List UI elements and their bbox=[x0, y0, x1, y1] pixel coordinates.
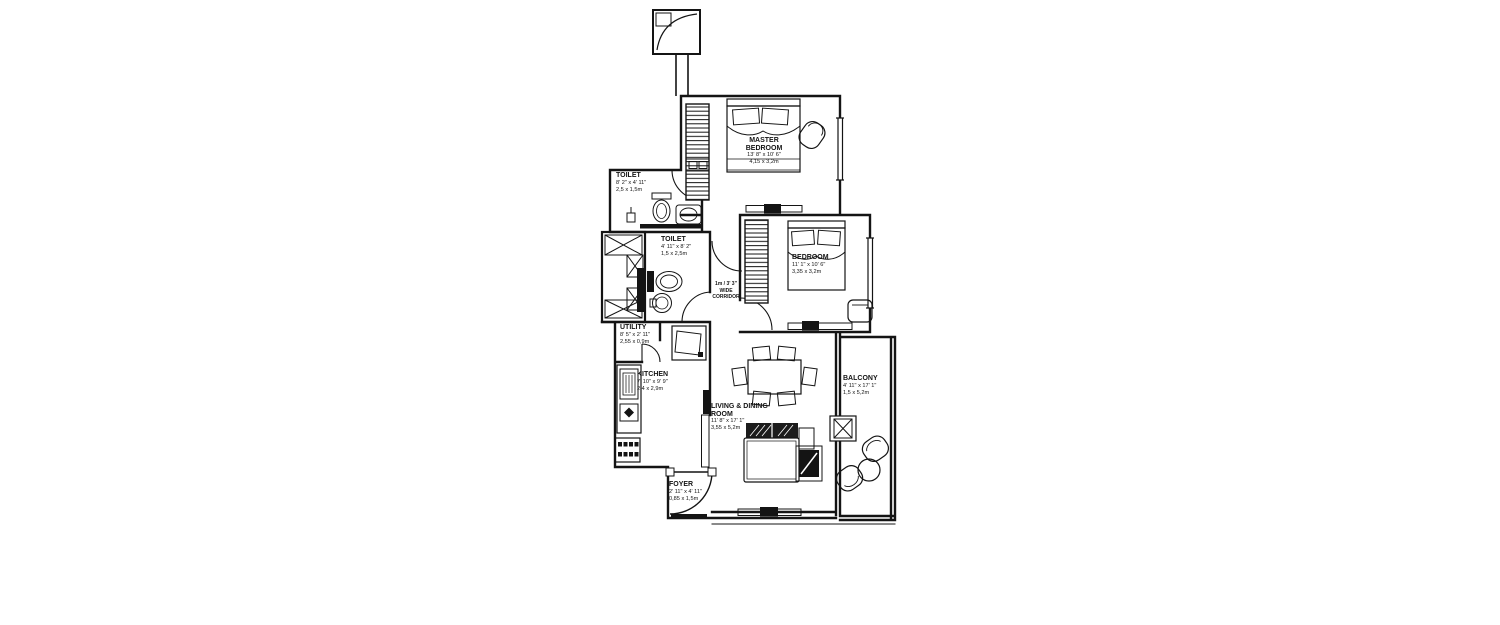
room-dim-metric: 2,5 x 1,5m bbox=[616, 187, 646, 194]
tall-unit bbox=[703, 390, 710, 414]
room-name: TOILET bbox=[661, 236, 691, 244]
shower-icon bbox=[627, 207, 635, 222]
washbasin-icon bbox=[650, 294, 672, 313]
room-dim-imperial: 8' 5" x 2' 11" bbox=[620, 332, 650, 339]
room-dim-metric: 2,55 x 0,9m bbox=[620, 339, 650, 346]
kitchen-label: KITCHEN 7' 10" x 9' 9" 2,4 x 2,9m bbox=[637, 371, 668, 393]
toilet-mid-fixtures bbox=[637, 268, 682, 313]
bedroom-console bbox=[788, 321, 852, 331]
room-name: UTILITY bbox=[620, 324, 650, 332]
room-dim-metric: 3,55 x 5,2m bbox=[711, 425, 773, 432]
foyer-label: FOYER 2' 11" x 4' 11" 0,85 x 1,5m bbox=[669, 481, 702, 503]
dining-chairs bbox=[732, 346, 817, 406]
room-dim-imperial: 4' 11" x 8' 2" bbox=[661, 244, 691, 251]
room-name: KITCHEN bbox=[637, 371, 668, 379]
room-dim-imperial: 4' 11" x 17' 1" bbox=[843, 383, 878, 390]
balcony-table bbox=[858, 459, 880, 481]
stove-icon bbox=[615, 438, 640, 462]
pocket-door bbox=[637, 268, 646, 312]
master-bedroom-label: MASTER BEDROOM 13' 8" x 10' 6" 4,15 x 3,… bbox=[735, 137, 793, 166]
room-name: MASTER BEDROOM bbox=[735, 137, 793, 152]
kitchen-furniture bbox=[615, 326, 710, 467]
bedroom-label: BEDROOM 11' 1" x 10' 6" 3,35 x 3,2m bbox=[792, 254, 829, 276]
top-duct bbox=[653, 10, 700, 96]
toilet-mid-label: TOILET 4' 11" x 8' 2" 1,5 x 2,5m bbox=[661, 236, 691, 258]
living-dining-label: LIVING & DINING ROOM 11' 8" x 17' 1" 3,5… bbox=[711, 403, 773, 432]
master-console bbox=[746, 204, 802, 214]
room-dim-imperial: 11' 1" x 10' 6" bbox=[792, 262, 829, 269]
wc-icon bbox=[652, 193, 671, 222]
room-name: LIVING & DINING ROOM bbox=[711, 403, 773, 418]
room-dim-metric: 2,4 x 2,9m bbox=[637, 386, 668, 393]
entry-threshold bbox=[671, 514, 707, 519]
dining-table bbox=[748, 360, 801, 394]
wc-icon bbox=[647, 271, 682, 292]
floorplan-canvas: MASTER BEDROOM 13' 8" x 10' 6" 4,15 x 3,… bbox=[0, 0, 1500, 625]
hob-icon bbox=[620, 404, 638, 421]
floorplan-drawing bbox=[0, 0, 1500, 625]
room-name: FOYER bbox=[669, 481, 702, 489]
shower-partition bbox=[640, 224, 702, 229]
ac-unit bbox=[830, 416, 856, 441]
room-dim-metric: 0,85 x 1,5m bbox=[669, 496, 702, 503]
room-dim-imperial: 11' 8" x 17' 1" bbox=[711, 418, 773, 425]
tv-unit bbox=[796, 446, 822, 481]
room-name: TOILET bbox=[616, 172, 646, 180]
room-dim-metric: 1,5 x 2,5m bbox=[661, 251, 691, 258]
counter-return bbox=[702, 415, 710, 467]
room-dim-metric: 1,5 x 5,2m bbox=[843, 390, 878, 397]
master-door-arc bbox=[712, 241, 742, 271]
windows bbox=[836, 118, 874, 308]
toilet-top-label: TOILET 8' 2" x 4' 11" 2,5 x 1,5m bbox=[616, 172, 646, 194]
sink-icon bbox=[620, 369, 638, 399]
utility-door-arc bbox=[642, 344, 660, 362]
room-dim-imperial: 8' 2" x 4' 11" bbox=[616, 180, 646, 187]
room-dim-imperial: 13' 8" x 10' 6" bbox=[735, 152, 793, 159]
master-wardrobe bbox=[686, 104, 709, 200]
corridor-label: 1m / 3' 3" WIDE CORRIDOR bbox=[702, 281, 750, 301]
room-name: BALCONY bbox=[843, 375, 878, 383]
fridge-icon bbox=[672, 326, 706, 360]
room-dim-imperial: 2' 11" x 4' 11" bbox=[669, 489, 702, 496]
utility-label: UTILITY 8' 5" x 2' 11" 2,55 x 0,9m bbox=[620, 324, 650, 346]
bedroom-window bbox=[866, 238, 874, 308]
room-dim-imperial: 7' 10" x 9' 9" bbox=[637, 379, 668, 386]
balcony-label: BALCONY 4' 11" x 17' 1" 1,5 x 5,2m bbox=[843, 375, 878, 397]
room-dim-metric: 4,15 x 3,2m bbox=[735, 159, 793, 166]
master-window bbox=[836, 118, 844, 180]
room-dim-metric: 3,35 x 3,2m bbox=[792, 269, 829, 276]
room-name: BEDROOM bbox=[792, 254, 829, 262]
